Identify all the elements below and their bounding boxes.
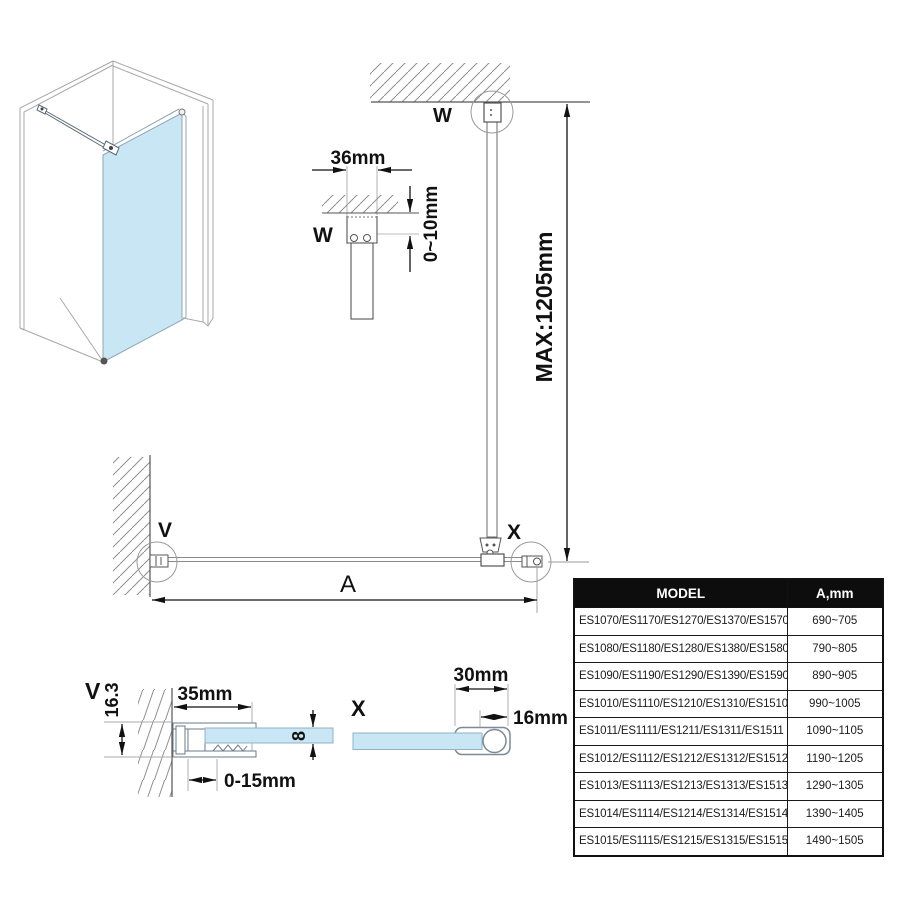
right-wall-top-inner [113, 66, 208, 104]
profile-spring-grip [213, 745, 247, 751]
left-wall-inner-edge [24, 65, 113, 330]
callout-label-v-detail: V [85, 678, 101, 704]
glass-top-cap [179, 109, 185, 115]
floor-foot-iso [101, 358, 108, 365]
left-wall-outline [20, 61, 113, 328]
model-cell: ES1010/ES1110/ES1210/ES1310/ES1510 [574, 690, 787, 718]
support-pole-main [487, 122, 497, 537]
support-pole-section [351, 243, 373, 319]
amm-cell: 1090~1105 [787, 718, 883, 746]
table-row: ES1012/ES1112/ES1212/ES1312/ES1512 1190~… [574, 745, 883, 773]
amm-cell: 890~905 [787, 663, 883, 691]
glass-section-v [205, 728, 333, 743]
callout-label-w-detail: W [313, 224, 333, 247]
dim-label-35mm: 35mm [178, 684, 233, 705]
left-wall-bottom-edge [20, 328, 103, 362]
table-row: ES1090/ES1190/ES1290/ES1390/ES1590 890~9… [574, 663, 883, 691]
model-table: MODEL A,mm ES1070/ES1170/ES1270/ES1370/E… [573, 578, 882, 847]
model-cell: ES1012/ES1112/ES1212/ES1312/ES1512 [574, 745, 787, 773]
dim-label-16mm: 16mm [513, 708, 568, 729]
model-cell: ES1013/ES1113/ES1213/ES1313/ES1513 [574, 773, 787, 801]
model-cell: ES1090/ES1190/ES1290/ES1390/ES1590 [574, 663, 787, 691]
dim-label-a: A [340, 571, 356, 598]
dim-label-16-3: 16.3 [102, 682, 122, 717]
model-cell: ES1015/ES1115/ES1215/ES1315/ES1515 [574, 828, 787, 856]
glass-section-x [353, 733, 482, 750]
amm-cell: 1190~1205 [787, 745, 883, 773]
right-wall-top-outer [113, 61, 213, 100]
isometric-view [20, 61, 213, 365]
bracket-screw-right [364, 235, 371, 242]
bracket-screw-left [351, 235, 358, 242]
table-row: ES1013/ES1113/ES1213/ES1313/ES1513 1290~… [574, 773, 883, 801]
model-cell: ES1014/ES1114/ES1214/ES1314/ES1514 [574, 800, 787, 828]
table-row: ES1011/ES1111/ES1211/ES1311/ES1511 1090~… [574, 718, 883, 746]
amm-cell: 990~1005 [787, 690, 883, 718]
ceiling-bracket-main [484, 103, 501, 122]
dim-label-0-15mm: 0-15mm [224, 771, 296, 792]
dim-label-36mm: 36mm [331, 148, 386, 169]
ceiling-hatch-main [370, 63, 510, 102]
table-header-model: MODEL [574, 579, 787, 608]
wall-profile-fitting [150, 555, 168, 567]
model-cell: ES1070/ES1170/ES1270/ES1370/ES1570 [574, 608, 787, 636]
ceiling-hatch-detail [322, 195, 398, 213]
amm-cell: 790~805 [787, 635, 883, 663]
table-row: ES1015/ES1115/ES1215/ES1315/ES1515 1490~… [574, 828, 883, 856]
table-row: ES1080/ES1180/ES1280/ES1380/ES1580 790~8… [574, 635, 883, 663]
callout-label-v-main: V [158, 519, 172, 542]
callout-label-x-main: X [507, 521, 521, 544]
detail-v-section: V 16.3 35mm 8 0-15mm [85, 678, 333, 797]
dim-label-8: 8 [289, 731, 309, 741]
model-cell: ES1011/ES1111/ES1211/ES1311/ES1511 [574, 718, 787, 746]
table-row: ES1014/ES1114/ES1214/ES1314/ES1514 1390~… [574, 800, 883, 828]
amm-cell: 1290~1305 [787, 773, 883, 801]
support-bar-iso [37, 105, 119, 155]
glass-clamp-main [481, 554, 504, 566]
dim-label-30mm: 30mm [454, 665, 509, 686]
main-view: W V X MAX:1205mm A [113, 63, 590, 613]
end-clamp-tube [483, 730, 506, 753]
amm-cell: 690~705 [787, 608, 883, 636]
table-header-amm: A,mm [787, 579, 883, 608]
dim-label-max-height: MAX:1205mm [531, 232, 557, 383]
amm-cell: 1490~1505 [787, 828, 883, 856]
table-row: ES1070/ES1170/ES1270/ES1370/ES1570 690~7… [574, 608, 883, 636]
detail-w-section: 36mm 0~10mm W [312, 148, 442, 319]
model-cell: ES1080/ES1180/ES1280/ES1380/ES1580 [574, 635, 787, 663]
detail-x-section: X 30mm 16mm [351, 665, 568, 755]
table-header-row: MODEL A,mm [574, 579, 883, 608]
dim-label-0-10mm: 0~10mm [421, 186, 442, 263]
wall-hatch-main [113, 457, 150, 595]
callout-label-w-main: W [433, 105, 452, 127]
wall-hatch-detail-v [138, 689, 172, 797]
table-row: ES1010/ES1110/ES1210/ES1310/ES1510 990~1… [574, 690, 883, 718]
amm-cell: 1390~1405 [787, 800, 883, 828]
installation-diagram-page: 36mm 0~10mm W W [0, 0, 900, 900]
callout-label-x-detail: X [351, 696, 366, 721]
